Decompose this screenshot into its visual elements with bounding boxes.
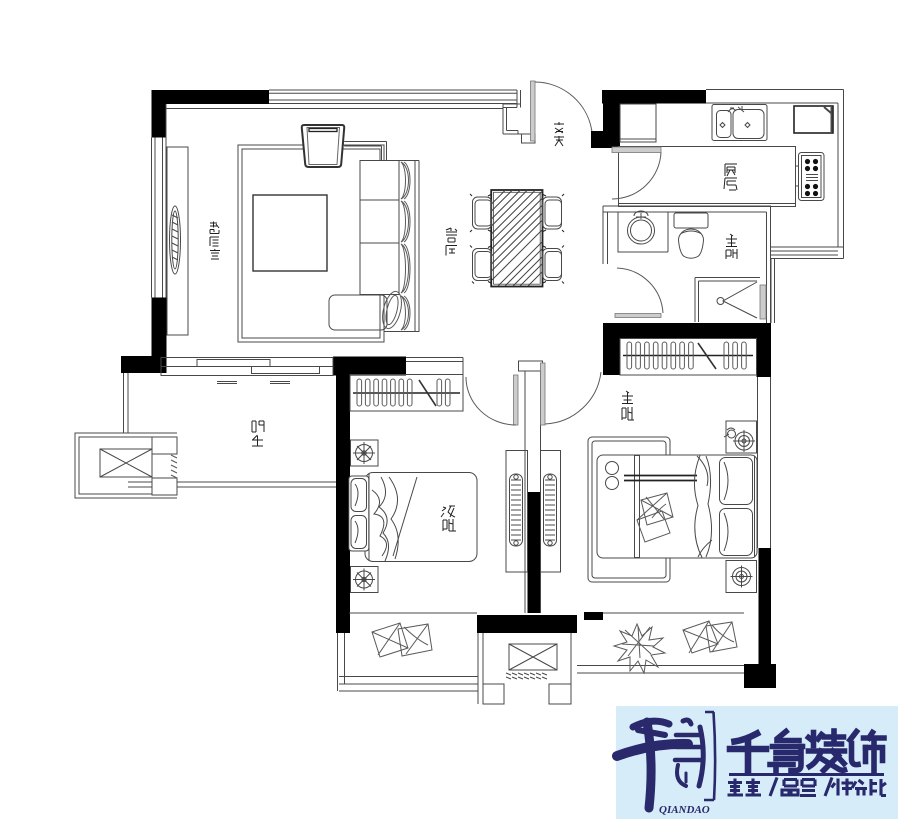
svg-text:QIANDAO: QIANDAO — [659, 804, 710, 816]
